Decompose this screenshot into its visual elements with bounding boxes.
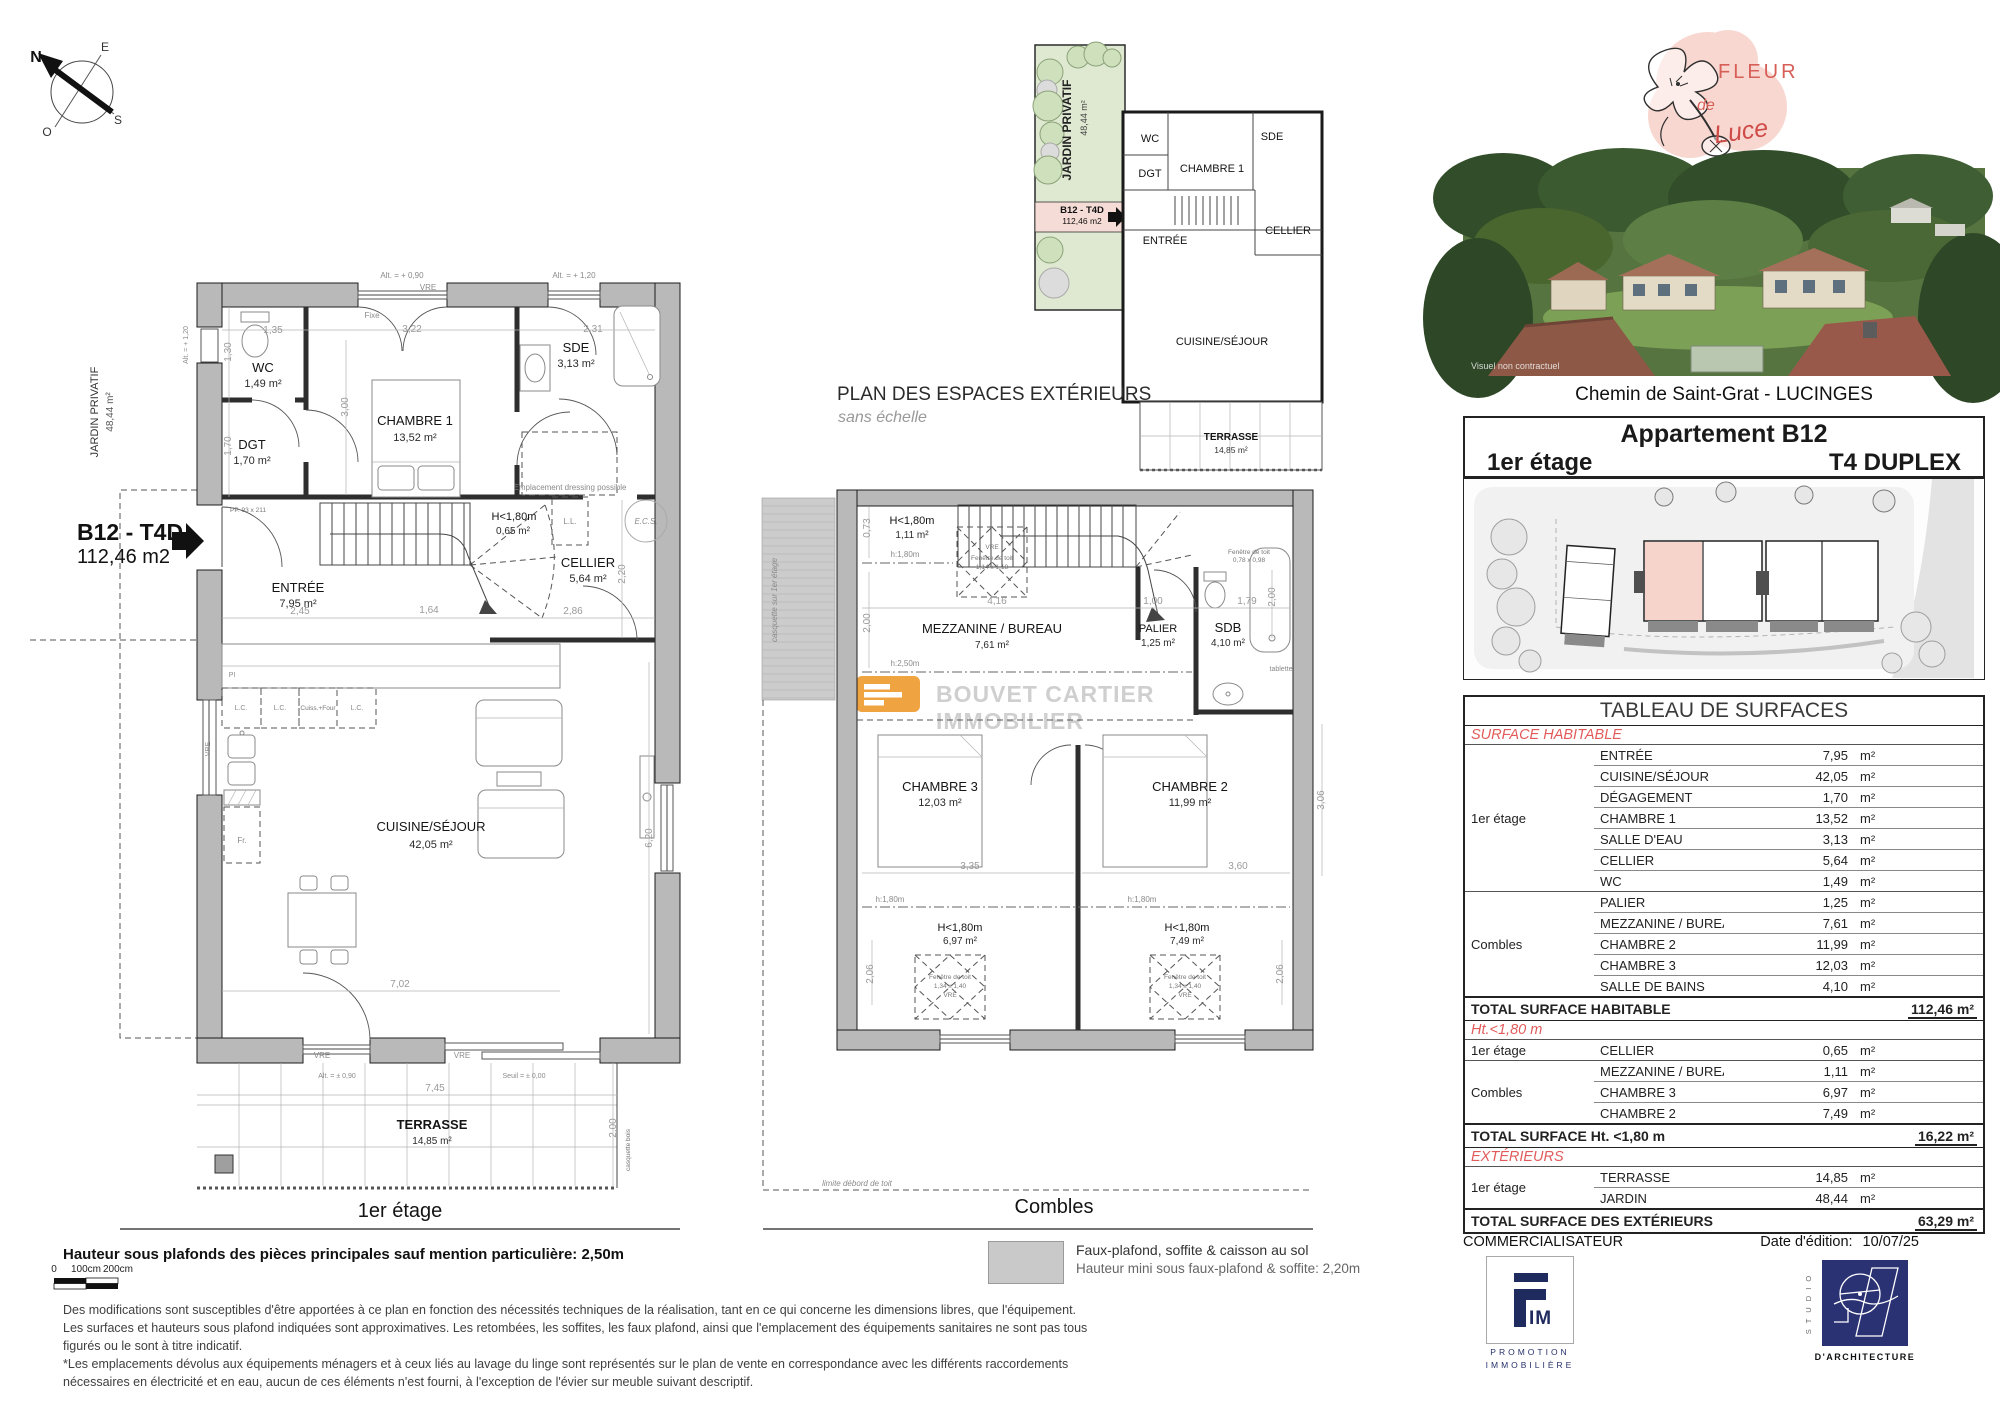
total-value: 112,46 m² [1908,1001,1977,1019]
room-label: CHAMBRE 1 [377,413,453,428]
room-area: 13,52 m² [393,432,437,444]
row-unit: m² [1854,1188,1984,1210]
compass-o: O [42,125,51,139]
room-area: 4,10 m² [1211,638,1246,649]
ann: h:1,80m [876,895,905,904]
jardin-area: 48,44 m² [105,392,116,432]
dim: 1,35 [263,325,283,336]
exterior-subtitle: sans échelle [838,409,927,426]
ann: 1,34 x 1,40 [934,983,967,990]
ann: casquette sur 1er étage [770,557,779,642]
row-unit: m² [1854,1103,1984,1125]
surface-table: TABLEAU DE SURFACES SURFACE HABITABLE 1e… [1463,695,1985,1234]
photo-caption: Visuel non contractuel [1471,361,1559,371]
jardin-side-label: JARDIN PRIVATIF 48,44 m² [89,366,116,457]
etage-title: 1er étage [358,1200,443,1222]
row-label: CHAMBRE 2 [1594,1103,1724,1125]
ann: VRE [205,741,212,756]
row-unit: m² [1854,745,1984,766]
group-name: 1er étage [1464,1040,1594,1061]
dim: 3,06 [1316,790,1327,810]
apartment-box: Appartement B12 1er étage T4 DUPLEX [1463,416,1985,478]
dim: 0,73 [862,518,873,538]
fim-line1: PROMOTION [1483,1347,1577,1357]
row-label: CHAMBRE 2 [1594,934,1724,955]
row-label: CHAMBRE 3 [1594,955,1724,976]
room-area: 1,11 m² [895,530,929,541]
dim: 3,00 [340,397,351,417]
compass-s: S [114,113,122,127]
ann: Fr. [237,836,246,845]
room-area: 1,25 m² [1141,638,1176,649]
ann: casquette bois [625,1128,632,1171]
row-label: CELLIER [1594,1040,1724,1061]
ann: L.C. [235,705,248,712]
row-value: 42,05 [1724,766,1854,787]
ext-jardin-area: 48,44 m² [1079,100,1089,136]
total-value: 16,22 m² [1915,1128,1977,1146]
row-unit: m² [1854,829,1984,850]
dim: 3,60 [1228,861,1248,872]
ann: 1,14 x 1,18 [976,564,1009,571]
ceiling-height-note: Hauteur sous plafonds des pièces princip… [63,1246,624,1263]
dim: 7,45 [425,1083,445,1094]
row-value: 48,44 [1724,1188,1854,1210]
total-label: TOTAL SURFACE HABITABLE [1464,997,1724,1021]
room-label: H<1,80m [938,922,983,934]
room-area: 5,64 m² [569,573,607,585]
row-unit: m² [1854,787,1984,808]
dim: 2,06 [865,964,876,984]
legend: Faux-plafond, soffite & caisson au sol H… [988,1241,1360,1284]
row-label: CELLIER [1594,850,1724,871]
row-value: 12,03 [1724,955,1854,976]
ann: E.C.S. [634,517,657,526]
row-value: 1,11 [1724,1061,1854,1082]
project-address: Chemin de Saint-Grat - LUCINGES [1463,384,1985,406]
section-title: EXTÉRIEURS [1464,1148,1984,1167]
row-label: SALLE DE BAINS [1594,976,1724,998]
dim: 2,00 [862,613,873,633]
fim-glyph-icon: IM [1499,1269,1561,1331]
group-name: Combles [1464,892,1594,998]
ann: Seuil = ± 0,00 [503,1073,546,1080]
room-label: PALIER [1139,623,1177,635]
plan-exterieur: JARDIN PRIVATIF 48,44 m² B12 - T4D 112,4… [837,42,1322,470]
room-area: 3,13 m² [557,358,595,370]
brand-de: de [1697,97,1715,114]
room-label: CHAMBRE 3 [902,779,978,794]
row-value: 14,85 [1724,1167,1854,1188]
dim: 2,31 [583,324,603,335]
ann: limite débord de toit [822,1179,893,1188]
room-area: 11,99 m² [1169,797,1212,809]
ann: Alt. = + 1,20 [183,326,190,364]
dim: 4,16 [987,596,1007,607]
legend-line1: Faux-plafond, soffite & caisson au sol [1076,1241,1360,1260]
row-value: 4,10 [1724,976,1854,998]
section-title: SURFACE HABITABLE [1464,726,1984,745]
ann: Emplacement dressing possible [514,483,627,492]
total-value: 63,29 m² [1915,1213,1977,1231]
row-unit: m² [1854,1167,1984,1188]
dim: 2,00 [1267,587,1278,607]
bouvet-watermark: BOUVET CARTIER IMMOBILIER [856,676,1154,734]
room-label: CHAMBRE 1 [1180,163,1244,175]
studio-architecture-logo: S T U D I O D'ARCHITECTURE [1800,1258,1920,1375]
dim: 1,79 [1237,596,1257,607]
group-name: 1er étage [1464,745,1594,892]
unit-tag: B12 - T4D 112,46 m2 [30,490,204,1038]
scale-bar: 0 100cm 200cm [46,1262,186,1302]
row-value: 1,70 [1724,787,1854,808]
combles-title: Combles [1015,1196,1094,1218]
watermark-line1: BOUVET CARTIER [936,681,1154,707]
total-label: TOTAL SURFACE DES EXTÉRIEURS [1464,1209,1724,1233]
row-label: DÉGAGEMENT [1594,787,1724,808]
scale-0: 0 [51,1264,57,1275]
row-unit: m² [1854,955,1984,976]
dim: 1,30 [223,342,234,362]
ann: VRE [454,1051,470,1060]
room-area: 12,03 m² [918,797,962,809]
legend-line2: Hauteur mini sous faux-plafond & soffite… [1076,1260,1360,1278]
ann: VRE [314,1051,330,1060]
ext-jardin-name: JARDIN PRIVATIF [1060,80,1074,181]
room-area: 42,05 m² [409,839,453,851]
row-unit: m² [1854,850,1984,871]
row-label: SALLE D'EAU [1594,829,1724,850]
ann: Fenêtre de toit [1164,974,1206,981]
apartment-type: T4 DUPLEX [1829,449,1961,477]
dim: 3,35 [960,861,980,872]
ann: 0,78 x 0,98 [1233,557,1266,564]
room-area: 0,65 m² [496,526,531,537]
disclaimer-line: *Les emplacements dévolus aux équipement… [63,1355,1123,1373]
row-value: 1,25 [1724,892,1854,913]
ann: PP. 93 x 211 [230,507,266,514]
ann: Cuiss.+Four [300,705,336,712]
exterior-title: PLAN DES ESPACES EXTÉRIEURS [837,384,1151,405]
compass-e: E [101,40,109,54]
section-title: Ht.<1,80 m [1464,1021,1984,1040]
row-value: 11,99 [1724,934,1854,955]
scale-200: 200cm [103,1264,133,1275]
row-label: CHAMBRE 1 [1594,808,1724,829]
floorplan-canvas: BOUVET CARTIER IMMOBILIER N E S O JARDIN… [0,0,1450,1250]
studio-bottom-text: D'ARCHITECTURE [1815,1352,1916,1362]
ann: tablette [1270,666,1293,673]
disclaimer: Des modifications sont susceptibles d'êt… [63,1301,1123,1391]
table-title: TABLEAU DE SURFACES [1464,696,1984,726]
disclaimer-line: Les surfaces et hauteurs sous plafond in… [63,1319,1123,1355]
row-unit: m² [1854,808,1984,829]
ann: VRE [1178,992,1192,999]
apartment-floor: 1er étage [1487,449,1592,477]
dim: 1,70 [223,436,234,456]
room-area: 14,85 m² [412,1136,452,1147]
room-label: WC [1141,133,1159,145]
dim: 1,00 [1143,596,1163,607]
combles-casquette: casquette sur 1er étage [762,498,835,700]
group-name: Combles [1464,1061,1594,1125]
apartment-title: Appartement B12 [1465,420,1983,449]
room-label: SDB [1215,620,1242,635]
room-label: CUISINE/SÉJOUR [376,819,485,834]
room-label: CUISINE/SÉJOUR [1176,335,1268,348]
fim-logo: IM PROMOTION IMMOBILIÈRE [1483,1256,1577,1370]
room-label: DGT [1138,168,1162,180]
row-label: PALIER [1594,892,1724,913]
ann: L.C. [274,705,287,712]
ann: VRE [420,283,436,292]
jardin-name: JARDIN PRIVATIF [89,366,101,457]
project-photo: Visuel non contractuel [1463,168,1985,376]
row-unit: m² [1854,892,1984,913]
siteplan-unit-b12 [1645,542,1702,620]
unit-area: 112,46 m2 [77,546,170,568]
disclaimer-line: Des modifications sont susceptibles d'êt… [63,1301,1123,1319]
total-label: TOTAL SURFACE Ht. <1,80 m [1464,1124,1724,1148]
row-label: MEZZANINE / BUREAU [1594,913,1724,934]
ann: h:2,50m [891,659,920,668]
room-label: SDE [563,340,590,355]
edition-date: 10/07/25 [1863,1234,1919,1250]
row-value: 7,49 [1724,1103,1854,1125]
room-label: H<1,80m [492,511,537,523]
dim: 7,02 [390,979,410,990]
room-area: 6,97 m² [943,936,978,947]
edition-label: Date d'édition: [1760,1234,1852,1250]
fim-line2: IMMOBILIÈRE [1483,1360,1577,1370]
ann: VRE [985,544,999,551]
dim: 3,22 [402,324,422,335]
compass-rose-icon: N E S O [30,40,122,139]
row-unit: m² [1854,1061,1984,1082]
room-label: ENTRÉE [1143,234,1188,247]
row-label: CUISINE/SÉJOUR [1594,766,1724,787]
row-unit: m² [1854,976,1984,998]
row-unit: m² [1854,1040,1984,1061]
ann: PI [229,672,236,679]
row-unit: m² [1854,934,1984,955]
row-value: 6,97 [1724,1082,1854,1103]
disclaimer-line: nécessaires en électricité et en eau, au… [63,1373,1123,1391]
row-unit: m² [1854,1082,1984,1103]
ann: Alt. = ± 0,90 [318,1073,356,1080]
ann: Alt. = + 0,90 [380,271,424,280]
ann: h:1,80m [891,550,920,559]
plan-1er-etage: WC 1,49 m² DGT 1,70 m² CHAMBRE 1 13,52 m… [120,271,680,1229]
room-label: CELLIER [561,555,615,570]
watermark-line2: IMMOBILIER [936,708,1084,734]
ext-tag-code: B12 - T4D [1060,205,1104,216]
plan-combles: casquette sur 1er étage [762,490,1327,1229]
dim: 2,45 [290,606,310,617]
dim: 2,20 [617,564,628,584]
ann: h:1,80m [1128,895,1157,904]
ext-tag-area: 112,46 m2 [1062,216,1102,226]
row-value: 7,95 [1724,745,1854,766]
row-value: 0,65 [1724,1040,1854,1061]
room-label: CHAMBRE 2 [1152,779,1228,794]
commercialisateur-label: COMMERCIALISATEUR [1463,1234,1623,1250]
row-label: ENTRÉE [1594,745,1724,766]
row-value: 1,49 [1724,871,1854,892]
ann: 1,34 x 1,40 [1169,983,1202,990]
room-label: H<1,80m [1165,922,1210,934]
row-label: TERRASSE [1594,1167,1724,1188]
ann: Fenêtre de toit [971,555,1013,562]
room-label: CELLIER [1265,225,1311,237]
row-label: JARDIN [1594,1188,1724,1210]
compass-n: N [30,49,42,66]
room-area: 7,49 m² [1170,936,1205,947]
room-area: 1,70 m² [233,455,271,467]
room-label: H<1,80m [890,515,935,527]
ann: L.C. [351,705,364,712]
dim: 2,00 [608,1118,619,1138]
room-label: WC [252,360,274,375]
ext-terrasse: TERRASSE [1204,432,1259,443]
dim: 2,86 [563,606,583,617]
site-plan [1463,478,1985,680]
row-label: CHAMBRE 3 [1594,1082,1724,1103]
fim-im: IM [1529,1308,1552,1329]
unit-code: B12 - T4D [77,519,183,545]
ann: Fenêtre de toit [1228,549,1270,556]
scale-100: 100cm [71,1264,101,1275]
row-label: MEZZANINE / BUREAU [1594,1061,1724,1082]
ann: VRE [943,992,957,999]
room-label: MEZZANINE / BUREAU [922,621,1062,636]
row-unit: m² [1854,871,1984,892]
room-area: 7,61 m² [975,640,1010,651]
ann: Alt. = + 1,20 [552,271,596,280]
group-name: 1er étage [1464,1167,1594,1210]
room-label: DGT [238,437,266,452]
dim: 2,06 [1275,964,1286,984]
ext-terrasse-area: 14,85 m² [1214,445,1248,455]
row-label: WC [1594,871,1724,892]
legend-swatch [988,1241,1064,1284]
brand-fleur: FLEUR [1718,61,1799,83]
row-value: 3,13 [1724,829,1854,850]
footer-row: COMMERCIALISATEUR Date d'édition:10/07/2… [1463,1234,1985,1250]
room-label: ENTRÉE [272,580,325,595]
plan-sheet: BOUVET CARTIER IMMOBILIER N E S O JARDIN… [0,0,2000,1413]
ann: L.L. [563,517,576,526]
room-area: 1,49 m² [244,378,282,390]
ann: Fenêtre de toit [929,974,971,981]
dim: 1,64 [419,605,439,616]
room-label: TERRASSE [397,1117,468,1132]
row-unit: m² [1854,913,1984,934]
row-value: 7,61 [1724,913,1854,934]
row-value: 5,64 [1724,850,1854,871]
row-unit: m² [1854,766,1984,787]
row-value: 13,52 [1724,808,1854,829]
dim: 6,20 [644,828,655,848]
studio-side-text: S T U D I O [1804,1274,1813,1334]
ann: Fixe [364,311,380,320]
room-label: SDE [1261,131,1284,143]
